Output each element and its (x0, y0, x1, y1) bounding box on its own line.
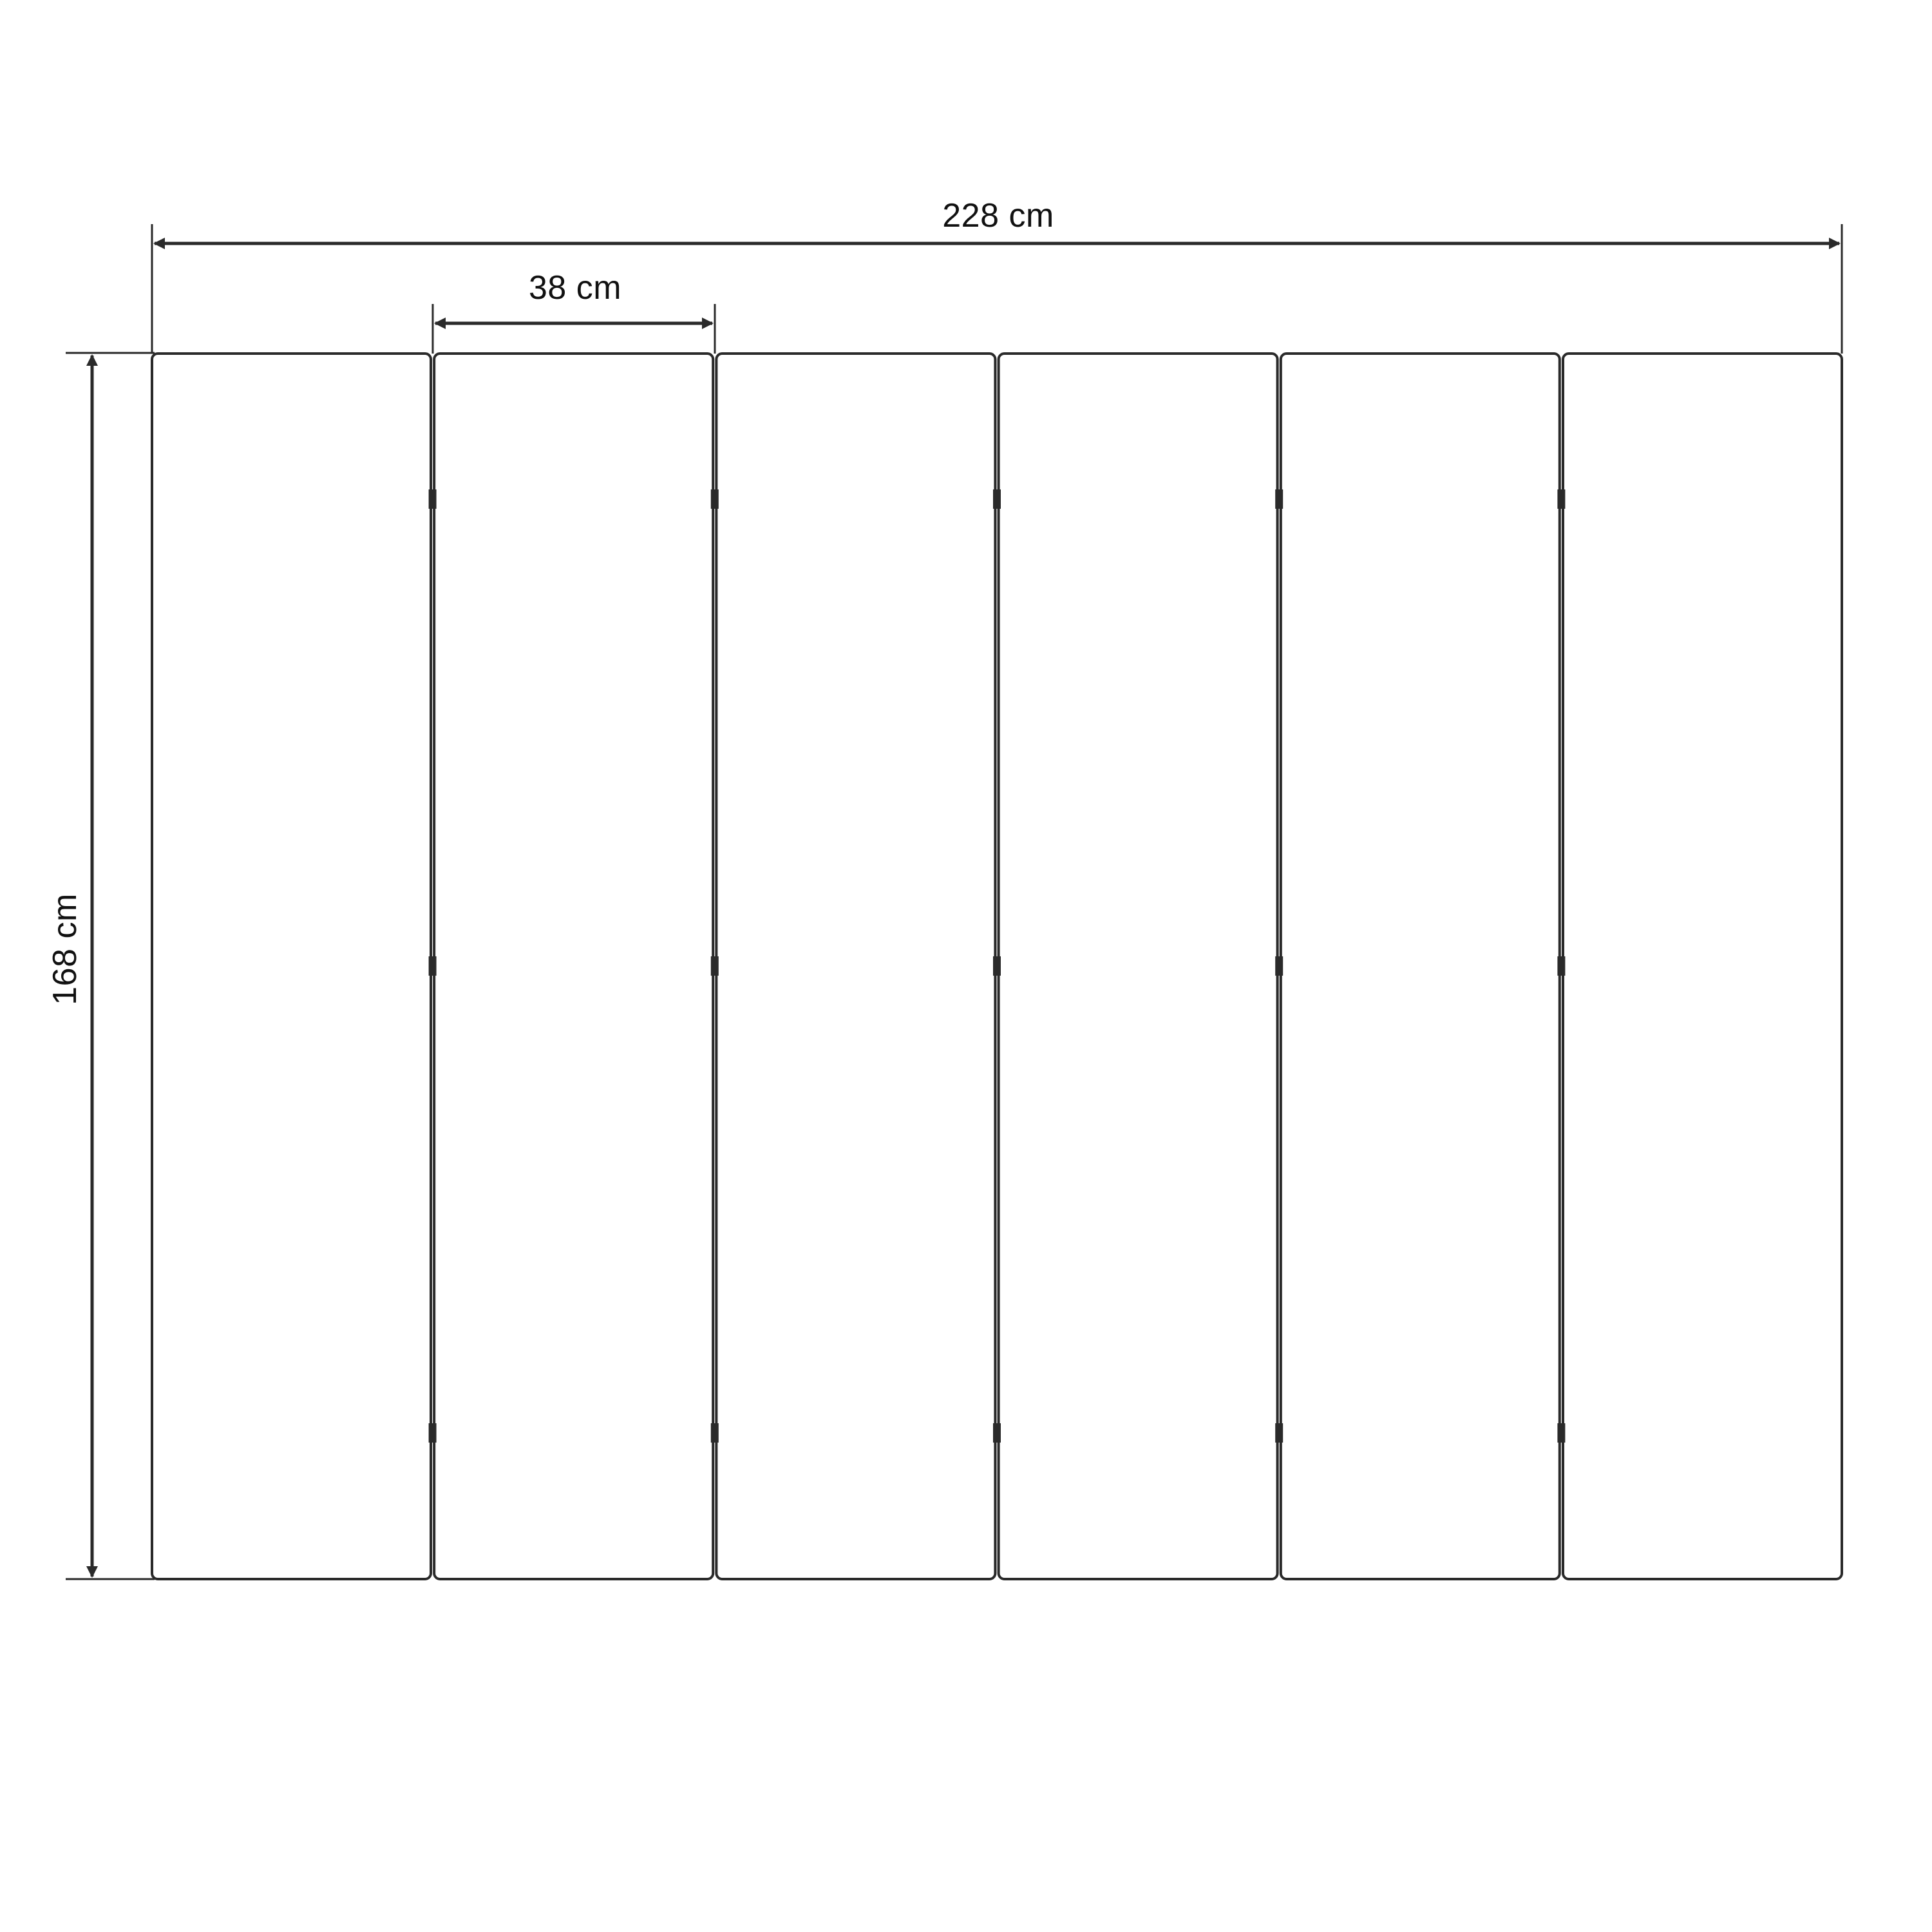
hinge-joint2-row3 (711, 1423, 719, 1443)
arrowhead-up (86, 354, 98, 366)
dimension-height: 168 cm (46, 353, 155, 1579)
dimension-panel-width: 38 cm (433, 269, 715, 354)
hinge-joint5-row2 (1557, 956, 1565, 976)
arrowhead-right (1829, 238, 1841, 249)
hinge-joint4-row2 (1275, 956, 1283, 976)
hinge-joint3-row3 (993, 1423, 1001, 1443)
panel-5 (1281, 354, 1560, 1579)
height-label: 168 cm (46, 893, 84, 1005)
hinge-joint4-row3 (1275, 1423, 1283, 1443)
drawing-canvas: 228 cm 38 cm 168 cm (0, 0, 1932, 1932)
arrowhead-left (434, 317, 446, 329)
panel-dimension-diagram: 228 cm 38 cm 168 cm (0, 0, 1932, 1932)
total-width-label: 228 cm (942, 197, 1054, 234)
arrowhead-down (86, 1566, 98, 1578)
hinge-joint5-row3 (1557, 1423, 1565, 1443)
panel-6 (1563, 354, 1842, 1579)
dimension-total-width: 228 cm (152, 197, 1842, 354)
panel-1 (152, 354, 431, 1579)
panel-width-label: 38 cm (529, 269, 621, 307)
arrowhead-left (153, 238, 165, 249)
panel-3 (716, 354, 995, 1579)
hinge-joint3-row2 (993, 956, 1001, 976)
hinge-joint2-row2 (711, 956, 719, 976)
hinge-joint1-row1 (429, 489, 437, 509)
hinge-joint2-row1 (711, 489, 719, 509)
panel-4 (999, 354, 1278, 1579)
hinge-joint1-row3 (429, 1423, 437, 1443)
hinge-joint5-row1 (1557, 489, 1565, 509)
panel-2 (434, 354, 713, 1579)
arrowhead-right (702, 317, 714, 329)
hinge-joint1-row2 (429, 956, 437, 976)
hinge-joint3-row1 (993, 489, 1001, 509)
hinge-joint4-row1 (1275, 489, 1283, 509)
